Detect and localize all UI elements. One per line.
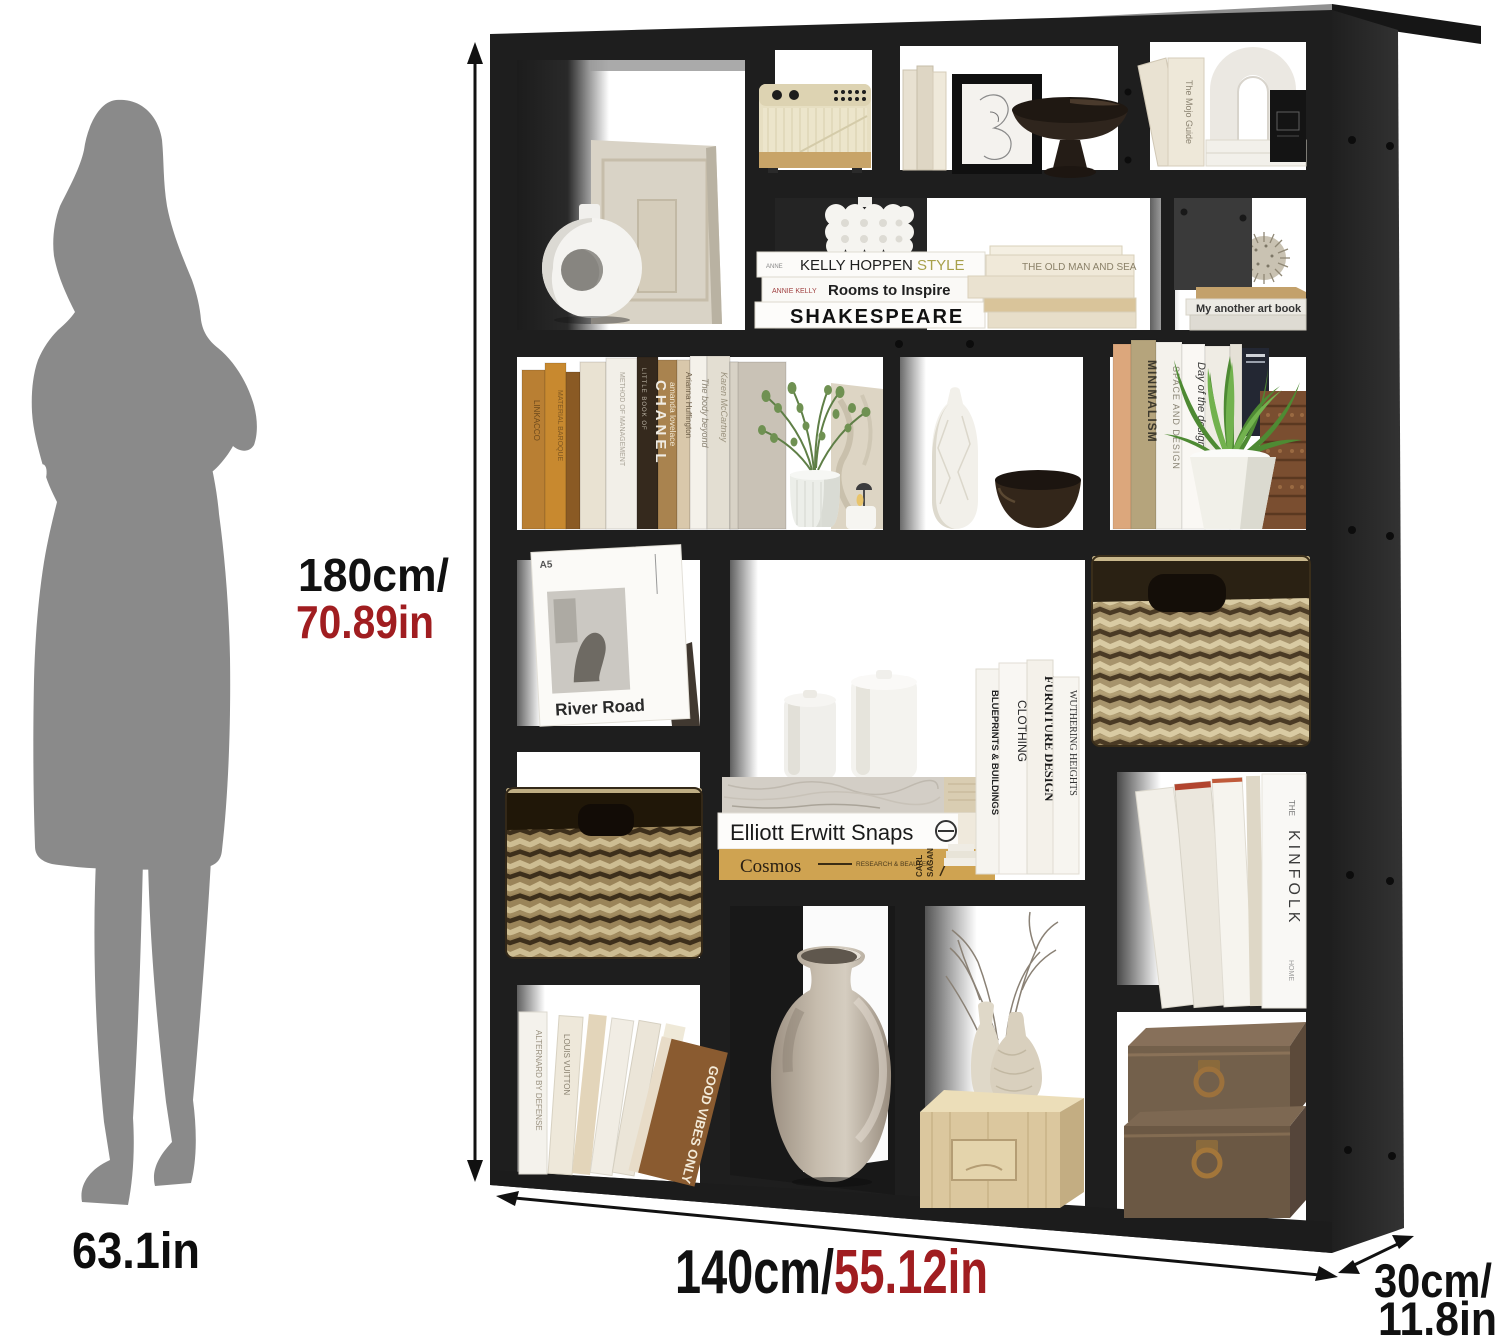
svg-text:CHANEL: CHANEL bbox=[652, 380, 669, 467]
svg-text:140cm/: 140cm/ bbox=[675, 1238, 834, 1307]
svg-text:MINIMALISM: MINIMALISM bbox=[1145, 360, 1159, 443]
svg-text:KELLY HOPPEN STYLE: KELLY HOPPEN STYLE bbox=[800, 257, 965, 274]
svg-text:Cosmos: Cosmos bbox=[740, 856, 801, 877]
svg-text:METHOD OF MANAGEMENT: METHOD OF MANAGEMENT bbox=[618, 372, 625, 467]
svg-text:ANNE: ANNE bbox=[766, 264, 783, 270]
svg-text:The body beyond: The body beyond bbox=[700, 378, 710, 449]
svg-text:ANNIE KELLY: ANNIE KELLY bbox=[772, 288, 817, 295]
svg-text:The Mojo Guide: The Mojo Guide bbox=[1184, 80, 1194, 144]
svg-text:KINFOLK: KINFOLK bbox=[1285, 830, 1302, 926]
svg-text:ALTERNARD BY DEFENSE: ALTERNARD BY DEFENSE bbox=[534, 1030, 543, 1131]
svg-text:LINKACCO: LINKACCO bbox=[532, 400, 541, 441]
svg-text:THE OLD MAN AND SEA: THE OLD MAN AND SEA bbox=[1022, 262, 1137, 273]
svg-text:HOME: HOME bbox=[1287, 960, 1294, 981]
svg-text:180cm/: 180cm/ bbox=[298, 549, 449, 601]
svg-text:WUTHERING HEIGHTS: WUTHERING HEIGHTS bbox=[1067, 690, 1078, 796]
svg-text:Arianna Huffington: Arianna Huffington bbox=[684, 372, 693, 438]
svg-text:My another art book: My another art book bbox=[1196, 303, 1302, 315]
svg-text:Elliott Erwitt Snaps: Elliott Erwitt Snaps bbox=[730, 820, 913, 845]
svg-text:SHAKESPEARE: SHAKESPEARE bbox=[790, 306, 964, 328]
svg-text:70.89in: 70.89in bbox=[296, 596, 434, 648]
svg-text:11.8in: 11.8in bbox=[1378, 1292, 1497, 1337]
svg-text:63.1in: 63.1in bbox=[72, 1222, 200, 1279]
svg-text:LITTLE BOOK OF: LITTLE BOOK OF bbox=[640, 368, 646, 431]
svg-text:BLUEPRINTS & BUILDINGS: BLUEPRINTS & BUILDINGS bbox=[989, 690, 1000, 815]
svg-text:Karen McCartney: Karen McCartney bbox=[719, 372, 729, 443]
svg-text:55.12in: 55.12in bbox=[834, 1238, 988, 1307]
svg-text:Rooms to Inspire: Rooms to Inspire bbox=[828, 282, 951, 299]
svg-text:LOUIS VUITTON: LOUIS VUITTON bbox=[562, 1034, 571, 1095]
svg-text:MATERIAL BAROQUE: MATERIAL BAROQUE bbox=[556, 390, 563, 462]
svg-text:A5: A5 bbox=[539, 559, 553, 571]
svg-text:CARL: CARL bbox=[915, 855, 924, 877]
svg-text:SAGAN: SAGAN bbox=[926, 848, 935, 877]
svg-text:amanda lovelace: amanda lovelace bbox=[668, 382, 678, 447]
svg-text:THE: THE bbox=[1287, 800, 1296, 816]
